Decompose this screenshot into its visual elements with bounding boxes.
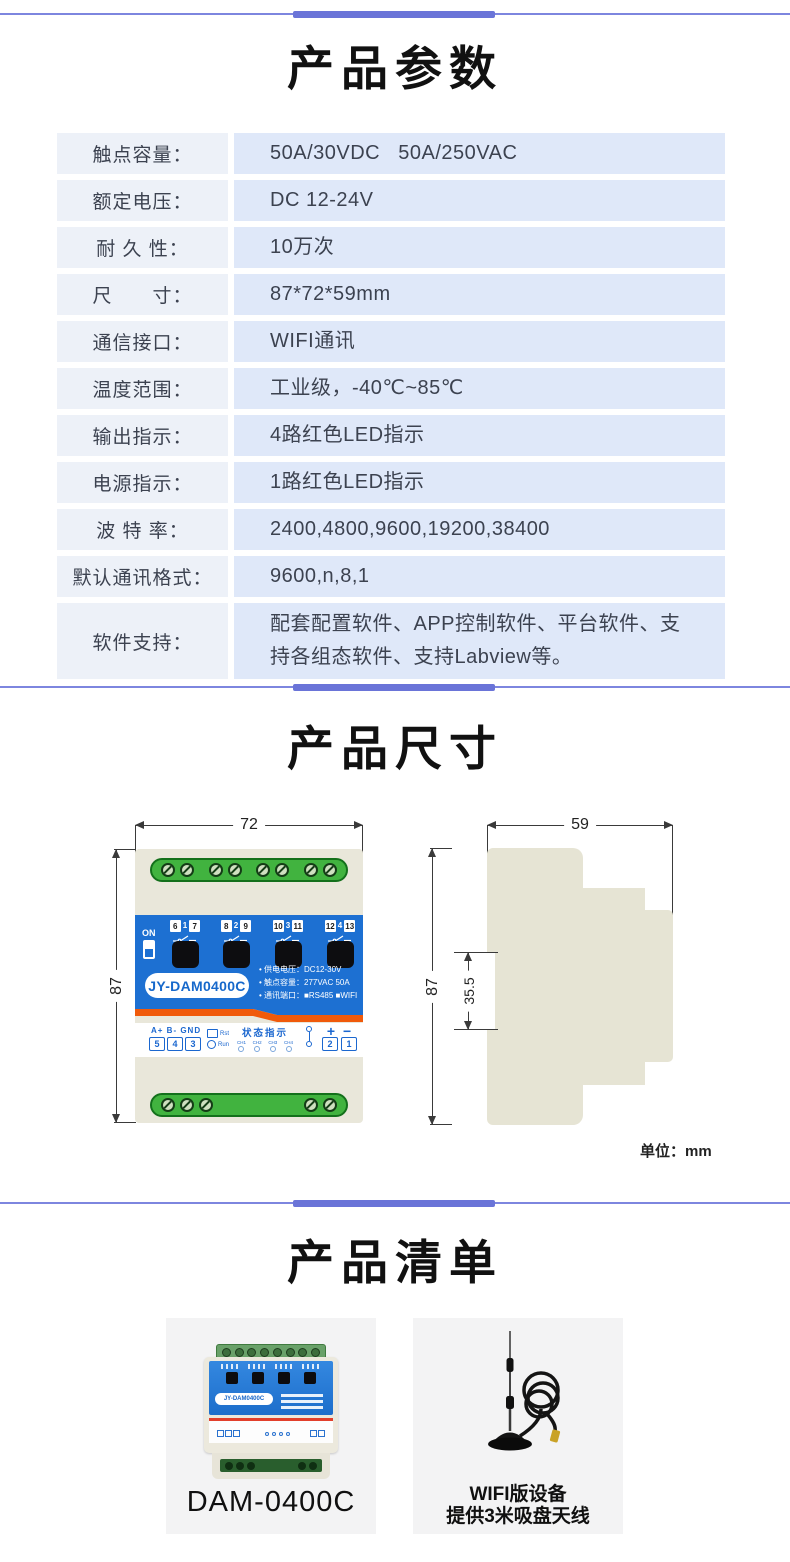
- terminal-number: 7: [189, 920, 200, 932]
- screw-icon: [180, 863, 194, 877]
- antenna-port-icon: [305, 1026, 313, 1047]
- screw-icon: [161, 863, 175, 877]
- photo-device-body: JY-DAM0400C: [204, 1357, 338, 1453]
- photo-power-pins: [310, 1430, 325, 1437]
- screw-icon: [256, 863, 270, 877]
- caption-line: WIFI版设备: [413, 1484, 623, 1506]
- io-labels: A+ B- GND: [151, 1026, 201, 1035]
- rst-icon: [207, 1029, 218, 1038]
- dim-label-front-height: 87: [108, 970, 126, 1002]
- screw-icon: [298, 1462, 306, 1470]
- dim-label-side-height: 87: [424, 971, 442, 1003]
- channel-label: CH3: [268, 1040, 277, 1045]
- spec-value: 87*72*59mm: [234, 274, 725, 315]
- pin-number: 1: [341, 1037, 357, 1051]
- channel-label: CH4: [284, 1040, 293, 1045]
- dim-side-notch: 35.5: [462, 952, 476, 1030]
- screw-icon: [225, 1462, 233, 1470]
- model-label: JY-DAM0400C: [145, 973, 249, 998]
- dim-label-side-notch: 35.5: [461, 970, 477, 1011]
- table-row: 软件支持：配套配置软件、APP控制软件、平台软件、支持各组态软件、支持Labvi…: [57, 603, 725, 679]
- spec-line: • 通讯端口：■RS485 ■WIFI: [259, 989, 357, 1002]
- spec-label: 耐 久 性：: [57, 227, 228, 268]
- table-row: 尺 寸：87*72*59mm: [57, 274, 725, 315]
- table-row: 触点容量：50A/30VDC 50A/250VAC: [57, 133, 725, 174]
- screw-icon: [235, 1348, 244, 1357]
- status-title: 状态指示: [233, 1025, 297, 1039]
- terminal-number: 12: [325, 920, 336, 932]
- spec-value: 50A/30VDC 50A/250VAC: [234, 133, 725, 174]
- spec-table: 触点容量：50A/30VDC 50A/250VAC 额定电压：DC 12-24V…: [57, 133, 725, 685]
- screw-icon: [222, 1348, 231, 1357]
- relay-block: [223, 941, 250, 968]
- pin-number: 4: [167, 1037, 183, 1051]
- photo-terminal-strip-bottom: [220, 1459, 322, 1472]
- dip-switch-icon: [143, 940, 155, 959]
- table-row: 耐 久 性：10万次: [57, 227, 725, 268]
- screw-icon: [247, 1348, 256, 1357]
- dim-label-side-width: 59: [564, 816, 596, 834]
- terminal-strip-top: [150, 858, 348, 882]
- photo-io-panel: [209, 1421, 333, 1443]
- run-label: Run: [218, 1042, 229, 1048]
- spec-label: 输出指示：: [57, 415, 228, 456]
- spec-label: 尺 寸：: [57, 274, 228, 315]
- spec-label: 额定电压：: [57, 180, 228, 221]
- side-view-step: [645, 910, 673, 1062]
- photo-relay-blocks: [209, 1369, 333, 1384]
- table-row: 电源指示：1路红色LED指示: [57, 462, 725, 503]
- rst-label: Rst: [220, 1031, 229, 1037]
- run-icon: [207, 1040, 216, 1049]
- screw-icon: [309, 1462, 317, 1470]
- spec-value: 4路红色LED指示: [234, 415, 725, 456]
- screw-icon: [209, 863, 223, 877]
- screw-icon: [161, 1098, 175, 1112]
- din-rail-notch: [487, 952, 495, 1030]
- rst-run-block: Rst Run: [207, 1028, 229, 1050]
- photo-io-pins: [217, 1430, 240, 1437]
- screw-icon: [323, 1098, 337, 1112]
- spec-value: 9600,n,8,1: [234, 556, 725, 597]
- screw-icon: [247, 1462, 255, 1470]
- screw-icon: [298, 1348, 307, 1357]
- pin-number: 2: [322, 1037, 338, 1051]
- led-icon: [286, 1046, 292, 1052]
- screw-icon: [273, 1348, 282, 1357]
- divider-bar: [293, 11, 495, 18]
- photo-front-panel: JY-DAM0400C: [209, 1361, 333, 1415]
- dim-front-width: 72: [135, 818, 363, 832]
- screw-icon: [323, 863, 337, 877]
- power-pins: 2 1: [322, 1037, 357, 1051]
- screw-icon: [199, 1098, 213, 1112]
- status-indicator-block: 状态指示 CH1 CH2 CH3 CH4: [233, 1025, 297, 1052]
- channel-labels: CH1 CH2 CH3 CH4: [233, 1040, 297, 1045]
- page-title-product-list: 产品清单: [0, 1234, 790, 1292]
- caption-line: 提供3米吸盘天线: [413, 1506, 623, 1528]
- spec-value: WIFI通讯: [234, 321, 725, 362]
- screw-icon: [311, 1348, 320, 1357]
- photo-model-label: JY-DAM0400C: [215, 1393, 273, 1405]
- device-io-panel: A+ B- GND 5 4 3 Rst Run 状态指示 CH1 CH2 CH3: [135, 1023, 363, 1057]
- product-caption: WIFI版设备 提供3米吸盘天线: [413, 1484, 623, 1528]
- dim-side-height: 87: [426, 848, 440, 1125]
- spec-value: 配套配置软件、APP控制软件、平台软件、支持各组态软件、支持Labview等。: [234, 603, 725, 679]
- channel-label: CH2: [253, 1040, 262, 1045]
- screw-icon: [286, 1348, 295, 1357]
- table-row: 温度范围：工业级，-40℃~85℃: [57, 368, 725, 409]
- screw-icon: [304, 1098, 318, 1112]
- table-row: 默认通讯格式：9600,n,8,1: [57, 556, 725, 597]
- channel-number: 2: [234, 920, 238, 932]
- spec-label: 波 特 率：: [57, 509, 228, 550]
- dim-label-front-width: 72: [233, 816, 265, 834]
- section-divider: [0, 11, 790, 19]
- relay-block: [172, 941, 199, 968]
- screw-icon: [304, 863, 318, 877]
- screw-icon: [275, 863, 289, 877]
- spec-label: 温度范围：: [57, 368, 228, 409]
- spec-value: 1路红色LED指示: [234, 462, 725, 503]
- led-icon: [270, 1046, 276, 1052]
- section-divider: [0, 684, 790, 692]
- table-row: 额定电压：DC 12-24V: [57, 180, 725, 221]
- device-photo: JY-DAM0400C: [204, 1344, 338, 1486]
- side-view-step: [583, 888, 645, 1085]
- spec-label: 触点容量：: [57, 133, 228, 174]
- terminal-number-group: 12413: [320, 920, 360, 932]
- dimension-drawings: 72 87 ON 617 829: [0, 810, 790, 1166]
- spec-value: DC 12-24V: [234, 180, 725, 221]
- screw-icon: [228, 863, 242, 877]
- terminal-number-group: 829: [216, 920, 256, 932]
- product-card-antenna: WIFI版设备 提供3米吸盘天线: [413, 1318, 623, 1534]
- led-icon: [238, 1046, 244, 1052]
- section-divider: [0, 1200, 790, 1208]
- spec-value: 2400,4800,9600,19200,38400: [234, 509, 725, 550]
- table-row: 通信接口：WIFI通讯: [57, 321, 725, 362]
- terminal-number: 9: [240, 920, 251, 932]
- divider-bar: [293, 1200, 495, 1207]
- table-row: 输出指示：4路红色LED指示: [57, 415, 725, 456]
- divider-bar: [293, 684, 495, 691]
- led-icon: [254, 1046, 260, 1052]
- panel-spec-lines: • 供电电压：DC12-30V • 触点容量：277VAC 50A • 通讯端口…: [259, 963, 357, 1002]
- spec-label: 默认通讯格式：: [57, 556, 228, 597]
- pin-number: 3: [185, 1037, 201, 1051]
- io-pins: 5 4 3: [149, 1037, 201, 1051]
- channel-number: 1: [183, 920, 187, 932]
- terminal-number-group: 617: [165, 920, 205, 932]
- screw-icon: [260, 1348, 269, 1357]
- spec-value: 工业级，-40℃~85℃: [234, 368, 725, 409]
- device-side-view: [487, 848, 583, 1125]
- photo-terminal-marks: [209, 1361, 333, 1369]
- antenna-photo: [448, 1326, 588, 1478]
- spec-label: 软件支持：: [57, 603, 228, 679]
- spec-label: 通信接口：: [57, 321, 228, 362]
- dim-front-height: 87: [110, 849, 124, 1123]
- terminal-number: 11: [292, 920, 303, 932]
- on-label: ON: [142, 928, 156, 938]
- unit-note: 单位：mm: [640, 1140, 770, 1161]
- pin-number: 5: [149, 1037, 165, 1051]
- terminal-number: 6: [170, 920, 181, 932]
- screw-icon: [180, 1098, 194, 1112]
- channel-leds: [233, 1046, 297, 1052]
- page-title-params: 产品参数: [0, 40, 790, 98]
- device-front-view: ON 617 829 10311 12413: [135, 849, 363, 1123]
- product-caption: DAM-0400C: [166, 1486, 376, 1519]
- photo-lower-housing: [212, 1453, 330, 1479]
- terminal-number: 10: [273, 920, 284, 932]
- product-detail-page: 产品参数 触点容量：50A/30VDC 50A/250VAC 额定电压：DC 1…: [0, 0, 790, 1562]
- terminal-number: 13: [344, 920, 355, 932]
- screw-icon: [236, 1462, 244, 1470]
- spec-value: 10万次: [234, 227, 725, 268]
- dim-side-width: 59: [487, 818, 673, 832]
- table-row: 波 特 率：2400,4800,9600,19200,38400: [57, 509, 725, 550]
- spec-label: 电源指示：: [57, 462, 228, 503]
- spec-line: • 供电电压：DC12-30V: [259, 963, 357, 976]
- page-title-dimensions: 产品尺寸: [0, 720, 790, 778]
- product-card-device: JY-DAM0400C DAM-0400C: [166, 1318, 376, 1534]
- photo-status-leds: [265, 1432, 290, 1436]
- terminal-strip-bottom: [150, 1093, 348, 1117]
- channel-number: 3: [286, 920, 290, 932]
- channel-label: CH1: [237, 1040, 246, 1045]
- terminal-number-group: 10311: [268, 920, 308, 932]
- channel-number: 4: [338, 920, 342, 932]
- spec-line: • 触点容量：277VAC 50A: [259, 976, 357, 989]
- device-front-panel: ON 617 829 10311 12413: [135, 915, 363, 1009]
- orange-stripe: [135, 1009, 363, 1023]
- terminal-number: 8: [221, 920, 232, 932]
